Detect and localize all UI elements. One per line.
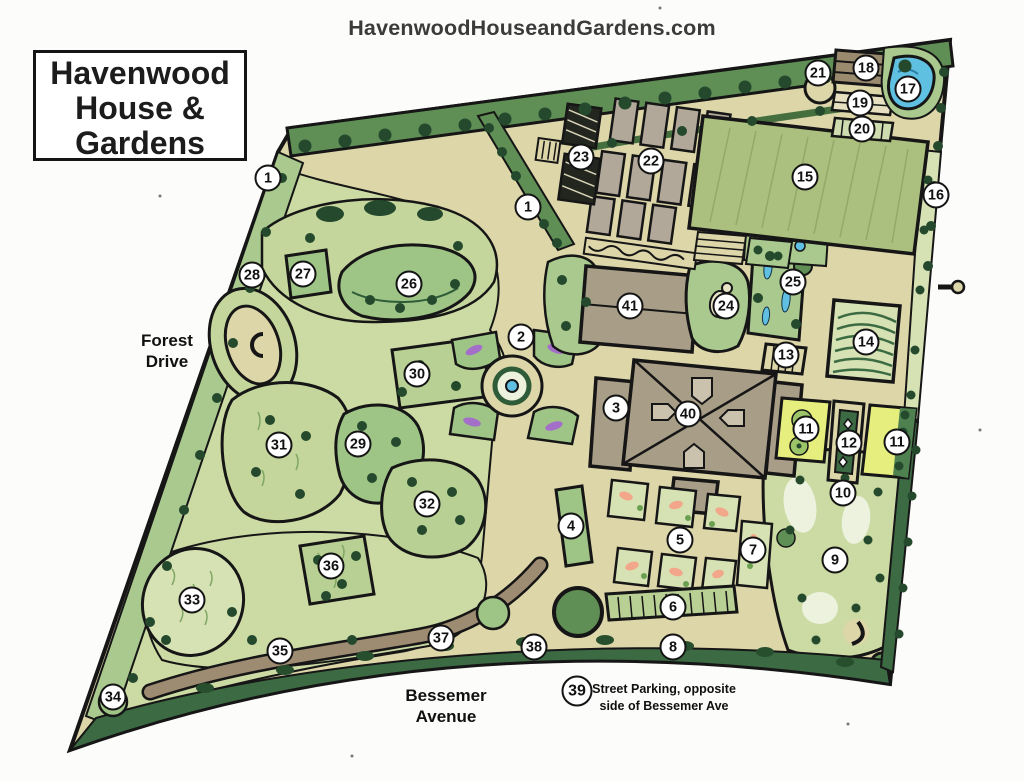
map-marker-13: 13 bbox=[773, 342, 800, 369]
map-marker-20: 20 bbox=[849, 116, 876, 143]
map-marker-16: 16 bbox=[923, 182, 950, 209]
map-marker-39: 39 bbox=[562, 676, 593, 707]
markers-layer: 1123456789101111121314151617181920212223… bbox=[0, 0, 1024, 781]
map-marker-38: 38 bbox=[521, 634, 548, 661]
map-marker-5: 5 bbox=[667, 527, 694, 554]
map-marker-10: 10 bbox=[830, 480, 857, 507]
map-marker-4: 4 bbox=[558, 513, 585, 540]
map-marker-1: 1 bbox=[515, 194, 542, 221]
map-marker-31: 31 bbox=[266, 432, 293, 459]
map-marker-23: 23 bbox=[568, 144, 595, 171]
scanned-garden-map-page: HavenwoodHouseandGardens.com Havenwood H… bbox=[0, 0, 1024, 781]
map-marker-12: 12 bbox=[836, 430, 863, 457]
map-marker-25: 25 bbox=[780, 269, 807, 296]
map-marker-11: 11 bbox=[793, 416, 820, 443]
map-marker-36: 36 bbox=[318, 553, 345, 580]
map-marker-26: 26 bbox=[396, 271, 423, 298]
map-marker-40: 40 bbox=[675, 401, 702, 428]
map-marker-29: 29 bbox=[345, 431, 372, 458]
map-marker-17: 17 bbox=[895, 76, 922, 103]
map-marker-24: 24 bbox=[713, 293, 740, 320]
map-marker-22: 22 bbox=[638, 148, 665, 175]
map-marker-37: 37 bbox=[428, 625, 455, 652]
map-marker-18: 18 bbox=[853, 55, 880, 82]
map-marker-33: 33 bbox=[179, 587, 206, 614]
map-marker-27: 27 bbox=[290, 261, 317, 288]
map-marker-32: 32 bbox=[414, 491, 441, 518]
map-marker-1: 1 bbox=[255, 165, 282, 192]
map-marker-9: 9 bbox=[822, 547, 849, 574]
map-marker-28: 28 bbox=[239, 262, 266, 289]
map-marker-11: 11 bbox=[884, 429, 911, 456]
map-marker-34: 34 bbox=[100, 684, 127, 711]
map-marker-15: 15 bbox=[792, 164, 819, 191]
map-marker-21: 21 bbox=[805, 60, 832, 87]
map-marker-30: 30 bbox=[404, 361, 431, 388]
map-marker-19: 19 bbox=[847, 90, 874, 117]
map-marker-35: 35 bbox=[267, 638, 294, 665]
map-marker-41: 41 bbox=[617, 293, 644, 320]
map-marker-14: 14 bbox=[853, 329, 880, 356]
map-marker-7: 7 bbox=[740, 537, 767, 564]
map-marker-2: 2 bbox=[508, 324, 535, 351]
map-marker-6: 6 bbox=[660, 594, 687, 621]
map-marker-8: 8 bbox=[660, 634, 687, 661]
map-marker-3: 3 bbox=[603, 395, 630, 422]
